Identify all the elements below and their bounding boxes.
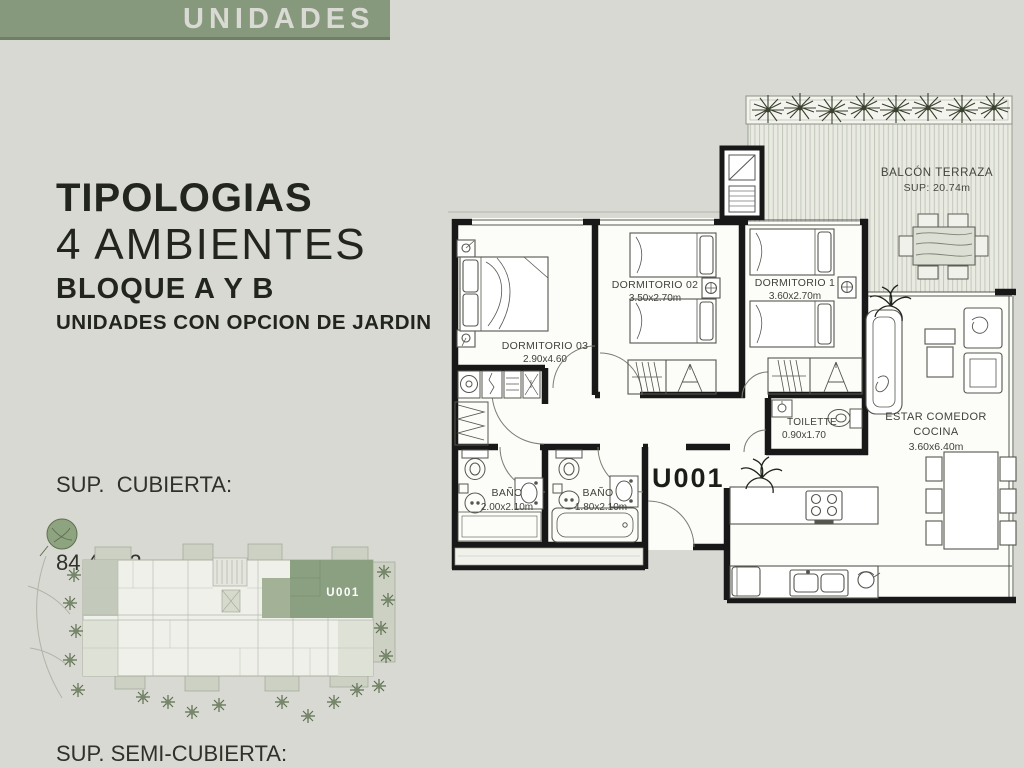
block-label: BLOQUE A Y B xyxy=(56,270,432,308)
site-unit-label: U001 xyxy=(326,587,360,599)
balcony-label: BALCÓN TERRAZA xyxy=(881,166,993,179)
site-plan: U001 xyxy=(25,510,425,758)
ambientes-subtitle: 4 AMBIENTES xyxy=(56,220,432,270)
garden-option-note: UNIDADES CON OPCION DE JARDIN xyxy=(56,308,432,338)
living-label-line2: COCINA xyxy=(913,426,958,438)
site-paths xyxy=(28,556,70,698)
bath2-label: BAÑO xyxy=(583,486,614,499)
site-unit-secondary xyxy=(262,578,290,618)
bath1-label: BAÑO xyxy=(492,486,523,499)
covered-surface-label: SUP. CUBIERTA: xyxy=(56,472,432,498)
bedroom3-dims: 2.90x4.60 xyxy=(523,354,567,365)
bedroom3-label: DORMITORIO 03 xyxy=(502,340,589,352)
toilette-label: TOILETTE xyxy=(787,417,837,428)
floorplan: BALCÓN TERRAZA SUP: 20.74m xyxy=(440,83,1024,613)
toilette-dims: 0.90x1.70 xyxy=(782,430,826,441)
site-tree xyxy=(40,519,77,556)
header-banner: UNIDADES xyxy=(0,0,390,40)
unit-code-label: U001 xyxy=(652,463,725,493)
shaft xyxy=(722,148,762,218)
bath2-dims: 1.80x2.10m xyxy=(575,502,627,513)
bedroom1-label: DORMITORIO 1 xyxy=(755,277,835,289)
page-title: UNIDADES xyxy=(183,3,374,36)
balcony-area-label: SUP: 20.74m xyxy=(904,182,971,194)
bedroom2-label: DORMITORIO 02 xyxy=(612,279,699,291)
planter-strip xyxy=(455,548,643,565)
bedroom1-dims: 3.60x2.70m xyxy=(769,291,821,302)
site-building: U001 xyxy=(83,544,395,691)
typologies-title: TIPOLOGIAS xyxy=(56,176,432,220)
bath1-dims: 2.00x2.10m xyxy=(481,502,533,513)
bedroom2-dims: 3.50x2.70m xyxy=(629,293,681,304)
living-dims: 3.60x6.40m xyxy=(909,441,964,453)
living-label-line1: ESTAR COMEDOR xyxy=(885,411,987,423)
